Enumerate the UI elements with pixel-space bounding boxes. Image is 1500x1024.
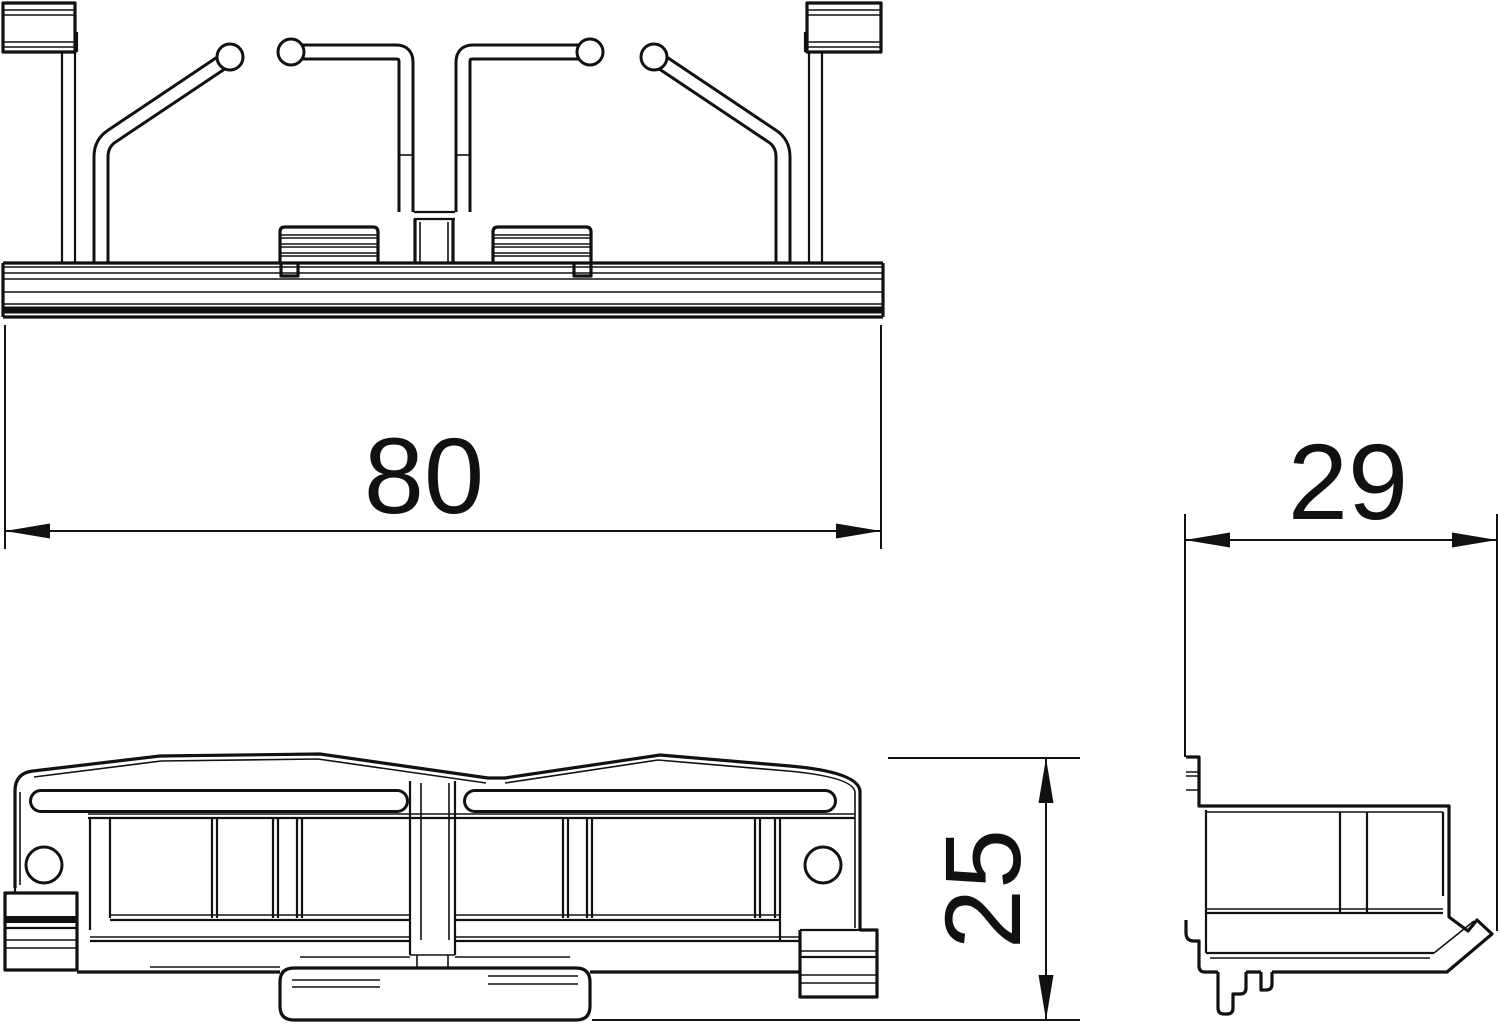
- spring-arm-inner-left: [278, 39, 414, 212]
- top-view-left-block: [280, 227, 378, 276]
- side-view: [1186, 757, 1492, 1014]
- technical-drawing: 80 29: [0, 0, 1500, 1024]
- dim-width-value: 80: [364, 415, 484, 536]
- spring-arm-outer-left: [101, 44, 243, 264]
- mounting-rail: [3, 263, 883, 317]
- front-view-foot: [280, 968, 590, 1020]
- top-view-left-tab: [3, 3, 77, 52]
- dim-depth-arrow-left: [1185, 533, 1230, 548]
- front-view-outline: [15, 754, 860, 930]
- front-view-center-post: [410, 781, 455, 968]
- top-view-right-tab: [805, 3, 881, 52]
- dim-width-arrow-right: [836, 524, 881, 539]
- top-view-center-post: [414, 212, 455, 263]
- dimension-width: 80: [5, 325, 881, 549]
- dim-height-arrow-bottom: [1039, 975, 1054, 1020]
- front-view-right-hole: [805, 847, 841, 883]
- front-view-dividers: [90, 818, 780, 941]
- dim-height-arrow-top: [1039, 758, 1054, 803]
- dim-height-value: 25: [922, 829, 1043, 949]
- front-view-right-step: [800, 930, 877, 997]
- front-view-left-step: [5, 888, 77, 970]
- top-view: [3, 3, 883, 317]
- side-view-hook: [1205, 972, 1246, 1014]
- spring-arm-outer-right: [641, 44, 783, 264]
- dim-width-arrow-left: [5, 524, 50, 539]
- front-view-left-hole: [26, 847, 62, 883]
- top-view-right-block: [493, 227, 591, 276]
- spring-arm-inner-right: [455, 39, 603, 212]
- dim-depth-value: 29: [1288, 421, 1408, 542]
- dim-depth-arrow-right: [1452, 533, 1497, 548]
- front-view: [5, 754, 877, 1020]
- drawing-canvas: 80 29: [0, 0, 1500, 1024]
